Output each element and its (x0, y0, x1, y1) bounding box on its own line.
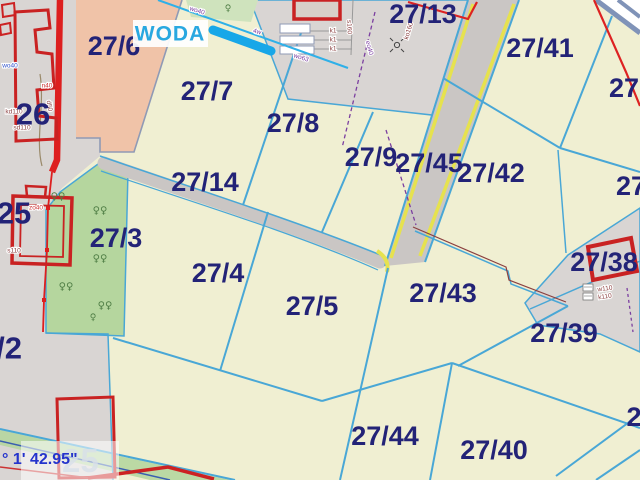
cadastral-map-svg: ♀♀ ♀♀ ♀♀ ♀♀ ♀♀ ♀ ♀ wo40 wo63 4w eo40 ko1… (0, 0, 640, 480)
parcel-label-27-8: 27/8 (267, 108, 320, 138)
parcel-label-27-44: 27/44 (351, 421, 419, 451)
tree-icon: ♀♀ (93, 254, 108, 265)
parcel-label-27-9: 27/9 (345, 142, 398, 172)
red-vertex (42, 298, 46, 302)
parcel-label-partial: 27 (609, 73, 639, 103)
woda-label: WODA (135, 23, 206, 46)
utility-label: k1 (330, 37, 337, 44)
parcel-label-27-3: 27/3 (90, 223, 143, 253)
parcel-label-2: /2 (0, 331, 22, 366)
map-canvas[interactable]: ♀♀ ♀♀ ♀♀ ♀♀ ♀♀ ♀ ♀ wo40 wo63 4w eo40 ko1… (0, 0, 640, 480)
parcel-label-27-7: 27/7 (181, 76, 234, 106)
parcel-label-27-40: 27/40 (460, 435, 528, 465)
coordinate-readout: ° 1' 42.95" (2, 451, 78, 468)
building-small (280, 36, 314, 44)
tree-icon: ♀♀ (51, 192, 66, 203)
utility-label: s160 (345, 20, 353, 35)
parcel-label-25: 25 (0, 196, 31, 231)
parcel-label-27-6: 27/6 (88, 31, 141, 61)
parcel-label-27-43: 27/43 (409, 278, 477, 308)
parcel-label-27-39: 27/39 (530, 318, 598, 348)
parcel-label-partial: 2 (626, 402, 640, 432)
utility-label: n40 (42, 83, 53, 90)
red-vertex (45, 248, 49, 252)
tree-icon: ♀ (225, 4, 232, 14)
utility-label: k1 (330, 46, 337, 53)
parcel-label-27-45: 27/45 (395, 148, 463, 178)
parcel-label-26: 26 (16, 97, 50, 132)
parcel-label-27-38: 27/38 (570, 247, 638, 277)
tree-icon: ♀♀ (93, 206, 108, 217)
red-vertex (46, 206, 50, 210)
tree-icon: ♀♀ (98, 301, 113, 312)
parcel-label-27-5: 27/5 (286, 291, 339, 321)
utility-label: wo40 (1, 63, 18, 70)
utility-label: k1 (330, 28, 337, 35)
building-small (280, 24, 310, 33)
parcel-label-partial: 27 (616, 171, 640, 201)
parcel-label-27-41: 27/41 (506, 33, 574, 63)
tree-icon: ♀♀ (59, 282, 74, 293)
parcel-label-27-4: 27/4 (192, 258, 245, 288)
utility-label: s110 (7, 248, 21, 255)
building-outline-top (294, 0, 340, 19)
parcel-label-27-13: 27/13 (389, 0, 457, 29)
parcel-label-27-42: 27/42 (457, 158, 525, 188)
tree-icon: ♀ (90, 313, 97, 323)
parcel-label-27-14: 27/14 (171, 167, 239, 197)
